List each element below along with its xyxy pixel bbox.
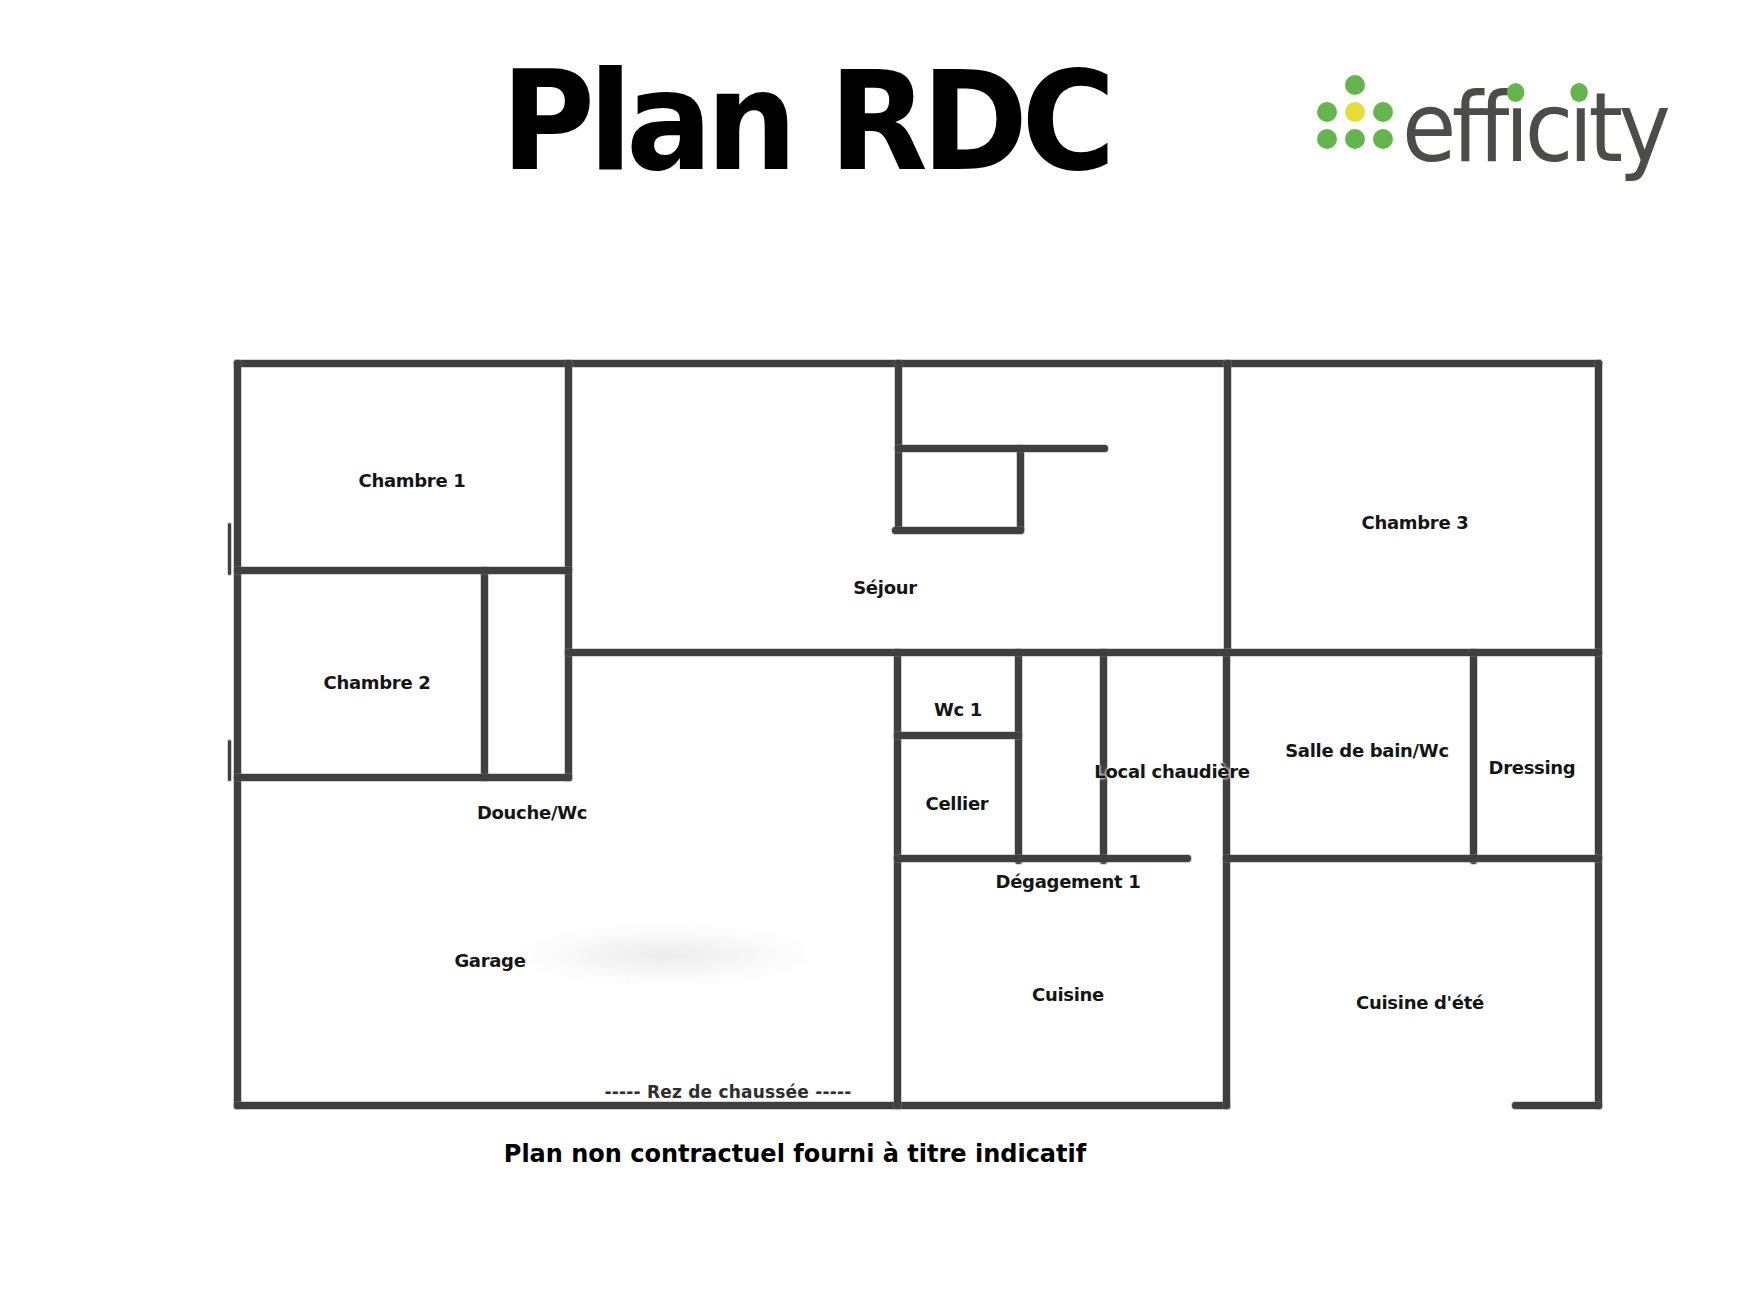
room-label-local-chaudiere: Local chaudière (1094, 761, 1249, 782)
wall-sdb-dressing-divider (1470, 649, 1477, 864)
wall-mid-left-vertical (894, 649, 901, 1109)
room-label-chambre-3: Chambre 3 (1362, 512, 1469, 533)
wall-alcove-right (1017, 445, 1024, 533)
room-label-salle-de-bain-wc: Salle de bain/Wc (1285, 740, 1449, 761)
wall-chambre2-bottom (234, 774, 572, 781)
room-label-degagement-1: Dégagement 1 (996, 871, 1141, 892)
room-label-dressing: Dressing (1489, 757, 1576, 778)
room-label-cellier: Cellier (926, 793, 989, 814)
wall-degagement-top (894, 855, 1191, 862)
wall-wc-cellier-divider (894, 732, 1022, 739)
room-label-chambre-2: Chambre 2 (324, 672, 431, 693)
wall-corridor-right (1100, 649, 1107, 864)
disclaimer-caption: Plan non contractuel fourni à titre indi… (504, 1140, 1086, 1168)
wall-alcove-top-stub (895, 445, 1108, 452)
wall-left-notch-upper (228, 523, 231, 575)
room-label-cuisine-d-ete: Cuisine d'été (1356, 992, 1484, 1013)
wall-left-notch-lower (228, 740, 231, 781)
wall-outer-right (1595, 360, 1602, 1109)
wall-sdb-dressing-bottom (1223, 855, 1602, 862)
erased-text-smudge (520, 925, 810, 985)
floor-note: ----- Rez de chaussée ----- (605, 1082, 852, 1102)
wall-sejour-bottom (565, 649, 1602, 656)
floor-plan: ----- Rez de chaussée ----- Chambre 1Cha… (0, 0, 1740, 1305)
wall-wc-cellier-right (1015, 649, 1022, 864)
wall-bottom-right-stub (1512, 1102, 1602, 1109)
wall-chambre2-right (481, 567, 488, 781)
wall-sejour-chambre3-divider (1224, 360, 1231, 656)
page: Plan RDC effıcıty ----- Rez de chaussée … (0, 0, 1740, 1305)
room-label-cuisine: Cuisine (1032, 984, 1104, 1005)
wall-outer-top (234, 360, 1602, 367)
room-label-garage: Garage (454, 950, 525, 971)
room-label-sejour: Séjour (853, 577, 917, 598)
wall-alcove-bottom (892, 527, 1024, 534)
room-label-wc-1: Wc 1 (934, 699, 982, 720)
wall-outer-left (234, 360, 241, 1109)
wall-chambre1-chambre2-divider (234, 567, 572, 574)
wall-chaufferie-right (1223, 649, 1230, 1109)
wall-bottom-main (234, 1102, 1230, 1109)
room-label-chambre-1: Chambre 1 (359, 470, 466, 491)
room-label-douche-wc: Douche/Wc (477, 802, 587, 823)
